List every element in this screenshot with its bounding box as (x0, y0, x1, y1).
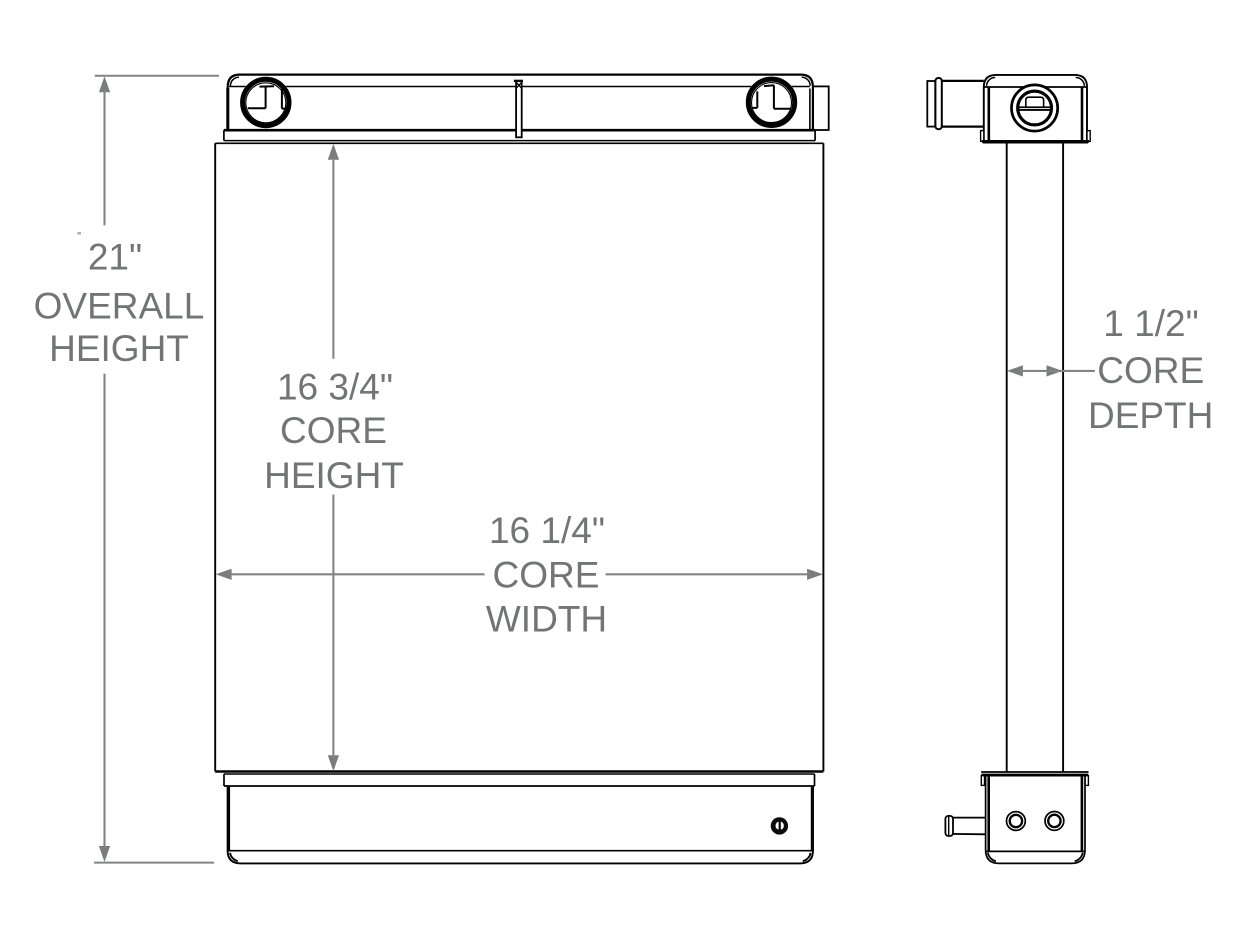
svg-text:1 1/2": 1 1/2" (1103, 303, 1198, 344)
svg-text:WIDTH: WIDTH (486, 599, 607, 640)
svg-text:16 3/4": 16 3/4" (277, 367, 393, 408)
svg-text:CORE: CORE (1097, 350, 1204, 391)
svg-text:DEPTH: DEPTH (1088, 395, 1213, 436)
svg-text:21": 21" (88, 237, 142, 278)
svg-text:CORE: CORE (280, 410, 387, 451)
svg-text:HEIGHT: HEIGHT (264, 455, 404, 496)
svg-text:16 1/4": 16 1/4" (489, 510, 605, 551)
svg-text:HEIGHT: HEIGHT (49, 328, 189, 369)
svg-text:CORE: CORE (493, 554, 600, 595)
svg-text:OVERALL: OVERALL (34, 286, 205, 327)
